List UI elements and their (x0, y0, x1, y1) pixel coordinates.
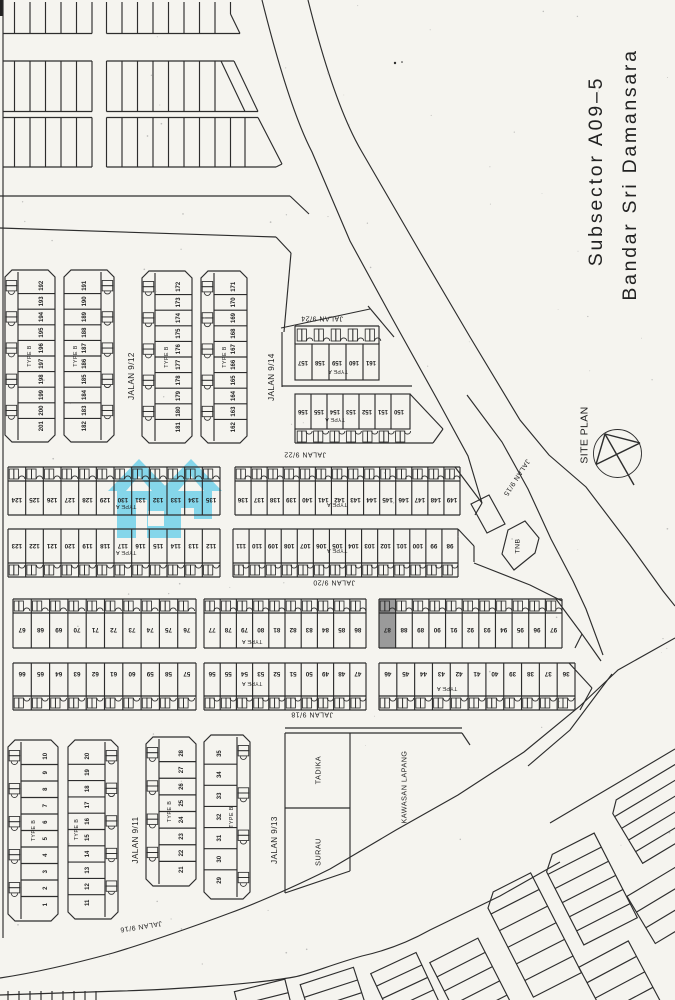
svg-text:98: 98 (446, 542, 454, 549)
svg-text:121: 121 (46, 542, 57, 549)
svg-text:159: 159 (331, 359, 342, 365)
svg-text:15: 15 (85, 834, 91, 841)
svg-text:JALAN 9/12: JALAN 9/12 (127, 352, 136, 400)
svg-text:TYPE B: TYPE B (167, 801, 173, 823)
svg-text:KAWASAN LAPANG: KAWASAN LAPANG (400, 750, 409, 823)
svg-text:91: 91 (450, 626, 458, 633)
svg-text:78: 78 (224, 626, 232, 633)
svg-text:59: 59 (146, 670, 154, 677)
svg-text:106: 106 (316, 542, 327, 549)
svg-text:45: 45 (402, 670, 410, 677)
svg-text:84: 84 (322, 626, 330, 633)
svg-text:180: 180 (176, 406, 182, 417)
svg-text:195: 195 (39, 327, 45, 338)
svg-text:TADIKA: TADIKA (314, 756, 323, 784)
svg-text:46: 46 (384, 670, 392, 677)
svg-text:163: 163 (231, 406, 237, 417)
svg-text:183: 183 (82, 405, 88, 416)
svg-text:34: 34 (217, 771, 223, 778)
svg-text:124: 124 (11, 496, 22, 503)
svg-text:TYPE A: TYPE A (242, 638, 263, 644)
svg-text:130: 130 (117, 496, 128, 503)
svg-text:69: 69 (55, 626, 63, 633)
svg-text:JALAN 9/13: JALAN 9/13 (270, 816, 279, 864)
svg-text:101: 101 (396, 542, 407, 549)
svg-text:194: 194 (39, 311, 45, 322)
svg-text:SITE PLAN: SITE PLAN (579, 406, 591, 463)
svg-text:32: 32 (217, 813, 223, 820)
svg-text:95: 95 (516, 626, 524, 633)
svg-text:74: 74 (146, 626, 154, 633)
svg-text:161: 161 (365, 359, 376, 365)
svg-text:165: 165 (231, 375, 237, 386)
svg-text:61: 61 (110, 670, 118, 677)
svg-text:16: 16 (85, 817, 91, 824)
svg-text:187: 187 (82, 343, 88, 354)
svg-text:90: 90 (433, 626, 441, 633)
svg-text:112: 112 (206, 542, 217, 549)
svg-text:31: 31 (217, 834, 223, 841)
svg-text:185: 185 (82, 374, 88, 385)
svg-text:35: 35 (217, 750, 223, 757)
svg-text:181: 181 (176, 422, 182, 433)
svg-text:191: 191 (82, 280, 88, 291)
svg-text:82: 82 (289, 626, 297, 633)
svg-text:89: 89 (417, 626, 425, 633)
svg-text:200: 200 (39, 405, 45, 416)
svg-text:56: 56 (208, 670, 216, 677)
svg-text:68: 68 (36, 626, 44, 633)
svg-text:50: 50 (305, 670, 313, 677)
svg-text:39: 39 (509, 670, 517, 677)
svg-text:26: 26 (179, 783, 185, 790)
svg-text:147: 147 (414, 496, 425, 503)
svg-text:108: 108 (284, 542, 295, 549)
svg-text:172: 172 (176, 281, 182, 292)
svg-text:12: 12 (85, 883, 91, 890)
svg-text:23: 23 (179, 832, 185, 839)
svg-text:52: 52 (273, 670, 281, 677)
svg-text:109: 109 (267, 542, 278, 549)
svg-text:113: 113 (188, 542, 199, 549)
svg-text:29: 29 (217, 876, 223, 883)
svg-text:136: 136 (237, 496, 248, 503)
svg-text:86: 86 (354, 626, 362, 633)
svg-text:21: 21 (179, 866, 185, 873)
svg-text:118: 118 (100, 542, 111, 549)
svg-text:132: 132 (152, 496, 163, 503)
svg-text:36: 36 (562, 670, 570, 677)
svg-text:197: 197 (39, 358, 45, 369)
svg-text:TYPE B: TYPE B (164, 346, 170, 368)
svg-text:135: 135 (205, 496, 216, 503)
svg-text:18: 18 (85, 785, 91, 792)
svg-text:126: 126 (46, 496, 57, 503)
svg-text:111: 111 (236, 542, 246, 549)
svg-text:JALAN 9/24: JALAN 9/24 (301, 315, 343, 322)
svg-text:102: 102 (380, 542, 391, 549)
svg-text:174: 174 (176, 312, 182, 323)
svg-text:TYPE A: TYPE A (327, 501, 348, 507)
svg-text:201: 201 (39, 421, 45, 432)
svg-text:149: 149 (446, 496, 457, 503)
svg-text:144: 144 (366, 496, 377, 503)
svg-text:143: 143 (350, 496, 361, 503)
svg-text:171: 171 (231, 281, 237, 292)
svg-text:127: 127 (64, 496, 75, 503)
svg-text:123: 123 (11, 542, 22, 549)
svg-text:93: 93 (483, 626, 491, 633)
svg-text:TYPE B: TYPE B (27, 345, 33, 367)
svg-text:133: 133 (170, 496, 181, 503)
svg-text:176: 176 (176, 344, 182, 355)
svg-text:73: 73 (128, 626, 136, 633)
svg-text:158: 158 (314, 359, 325, 365)
svg-text:28: 28 (179, 749, 185, 756)
svg-text:64: 64 (55, 670, 63, 677)
svg-text:146: 146 (398, 496, 409, 503)
svg-text:17: 17 (85, 801, 91, 808)
svg-text:57: 57 (183, 670, 191, 677)
svg-text:125: 125 (29, 496, 40, 503)
svg-text:JALAN 9/18: JALAN 9/18 (291, 711, 333, 718)
svg-text:13: 13 (85, 866, 91, 873)
svg-text:53: 53 (257, 670, 265, 677)
svg-text:188: 188 (82, 327, 88, 338)
svg-text:199: 199 (39, 389, 45, 400)
svg-text:54: 54 (241, 670, 249, 677)
svg-text:38: 38 (526, 670, 534, 677)
svg-text:175: 175 (176, 328, 182, 339)
svg-text:182: 182 (82, 421, 88, 432)
svg-text:138: 138 (269, 496, 280, 503)
svg-text:198: 198 (39, 374, 45, 385)
svg-text:22: 22 (179, 849, 185, 856)
svg-text:116: 116 (135, 542, 146, 549)
svg-text:164: 164 (231, 390, 237, 401)
svg-text:83: 83 (305, 626, 313, 633)
svg-text:157: 157 (297, 359, 308, 365)
svg-text:Subsector A09–5: Subsector A09–5 (585, 76, 607, 267)
svg-text:TYPE A: TYPE A (116, 503, 137, 509)
svg-text:40: 40 (491, 670, 499, 677)
svg-text:25: 25 (179, 799, 185, 806)
svg-text:81: 81 (273, 626, 281, 633)
svg-text:88: 88 (400, 626, 408, 633)
svg-text:62: 62 (91, 670, 99, 677)
svg-text:169: 169 (231, 312, 237, 323)
svg-text:131: 131 (135, 496, 146, 503)
svg-text:TYPE B: TYPE B (74, 819, 80, 841)
svg-text:99: 99 (430, 542, 438, 549)
svg-text:TYPE A: TYPE A (437, 685, 458, 691)
svg-text:75: 75 (165, 626, 173, 633)
svg-text:115: 115 (153, 542, 164, 549)
svg-text:178: 178 (176, 375, 182, 386)
svg-text:122: 122 (29, 542, 40, 549)
svg-text:189: 189 (82, 311, 88, 322)
svg-text:151: 151 (377, 408, 388, 414)
svg-text:71: 71 (91, 626, 99, 633)
svg-text:72: 72 (110, 626, 118, 633)
svg-text:27: 27 (179, 766, 185, 773)
svg-text:192: 192 (39, 280, 45, 291)
svg-text:94: 94 (500, 626, 508, 633)
svg-text:42: 42 (455, 670, 463, 677)
svg-text:65: 65 (36, 670, 44, 677)
svg-text:103: 103 (364, 542, 375, 549)
svg-text:51: 51 (289, 670, 297, 677)
svg-text:49: 49 (322, 670, 330, 677)
svg-text:79: 79 (241, 626, 249, 633)
svg-text:JALAN 9/20: JALAN 9/20 (313, 579, 355, 586)
svg-text:TYPE A: TYPE A (327, 547, 348, 553)
svg-text:179: 179 (176, 390, 182, 401)
svg-text:154: 154 (329, 408, 340, 414)
svg-text:67: 67 (18, 626, 26, 633)
svg-text:153: 153 (345, 408, 356, 414)
svg-text:TYPE B: TYPE B (73, 345, 79, 367)
svg-text:60: 60 (128, 670, 136, 677)
svg-text:55: 55 (224, 670, 232, 677)
svg-text:TYPE B: TYPE B (31, 820, 37, 842)
svg-text:TYPE A: TYPE A (328, 368, 348, 374)
svg-text:128: 128 (82, 496, 93, 503)
svg-text:97: 97 (550, 626, 558, 633)
svg-text:Bandar Sri Damansara: Bandar Sri Damansara (619, 48, 641, 300)
svg-text:JALAN 9/22: JALAN 9/22 (284, 451, 326, 458)
svg-text:134: 134 (188, 496, 199, 503)
svg-text:TNB: TNB (514, 538, 521, 553)
svg-text:190: 190 (82, 296, 88, 307)
svg-text:170: 170 (231, 297, 237, 308)
svg-text:44: 44 (420, 670, 428, 677)
svg-text:100: 100 (412, 542, 423, 549)
svg-text:145: 145 (382, 496, 393, 503)
svg-text:104: 104 (348, 542, 359, 549)
svg-text:66: 66 (18, 670, 26, 677)
svg-text:177: 177 (176, 359, 182, 370)
svg-text:JALAN 9/14: JALAN 9/14 (267, 353, 276, 401)
svg-text:114: 114 (170, 542, 181, 549)
svg-text:110: 110 (252, 542, 263, 549)
svg-text:166: 166 (231, 359, 237, 370)
svg-text:43: 43 (437, 670, 445, 677)
svg-text:193: 193 (39, 296, 45, 307)
svg-text:156: 156 (297, 408, 308, 414)
svg-text:20: 20 (85, 752, 91, 759)
svg-text:184: 184 (82, 389, 88, 400)
svg-text:14: 14 (85, 850, 91, 857)
svg-text:148: 148 (430, 496, 441, 503)
svg-text:TYPE A: TYPE A (116, 549, 137, 555)
svg-text:160: 160 (348, 359, 359, 365)
svg-text:140: 140 (302, 496, 313, 503)
svg-text:196: 196 (39, 343, 45, 354)
svg-text:139: 139 (286, 496, 297, 503)
svg-text:SURAU: SURAU (314, 838, 323, 866)
svg-text:48: 48 (338, 670, 346, 677)
svg-text:155: 155 (313, 408, 324, 414)
svg-text:TYPE A: TYPE A (242, 680, 263, 686)
svg-text:150: 150 (393, 408, 404, 414)
svg-text:186: 186 (82, 358, 88, 369)
svg-text:47: 47 (354, 670, 362, 677)
svg-text:85: 85 (338, 626, 346, 633)
svg-text:TYPE B: TYPE B (229, 806, 235, 828)
svg-text:117: 117 (117, 542, 128, 549)
svg-text:10: 10 (43, 752, 49, 759)
svg-text:41: 41 (473, 670, 481, 677)
svg-text:58: 58 (165, 670, 173, 677)
svg-text:173: 173 (176, 297, 182, 308)
svg-text:167: 167 (231, 344, 237, 355)
svg-text:63: 63 (73, 670, 81, 677)
svg-text:TYPE B: TYPE B (222, 346, 228, 368)
svg-text:19: 19 (85, 768, 91, 775)
svg-text:120: 120 (64, 542, 75, 549)
svg-text:TYPE A: TYPE A (325, 416, 345, 422)
svg-text:70: 70 (73, 626, 81, 633)
svg-text:162: 162 (231, 422, 237, 433)
svg-text:JALAN 9/11: JALAN 9/11 (131, 816, 140, 863)
svg-text:76: 76 (183, 626, 191, 633)
svg-text:129: 129 (99, 496, 110, 503)
svg-text:107: 107 (300, 542, 311, 549)
svg-text:137: 137 (253, 496, 264, 503)
svg-text:30: 30 (217, 855, 223, 862)
svg-text:33: 33 (217, 792, 223, 799)
svg-text:77: 77 (208, 626, 216, 633)
svg-text:80: 80 (257, 626, 265, 633)
svg-text:96: 96 (533, 626, 541, 633)
svg-text:92: 92 (467, 626, 475, 633)
svg-text:152: 152 (361, 408, 372, 414)
svg-text:119: 119 (82, 542, 93, 549)
svg-text:37: 37 (544, 670, 552, 677)
svg-text:24: 24 (179, 816, 185, 823)
svg-text:87: 87 (383, 626, 391, 633)
svg-text:11: 11 (85, 899, 91, 906)
svg-text:168: 168 (231, 328, 237, 339)
